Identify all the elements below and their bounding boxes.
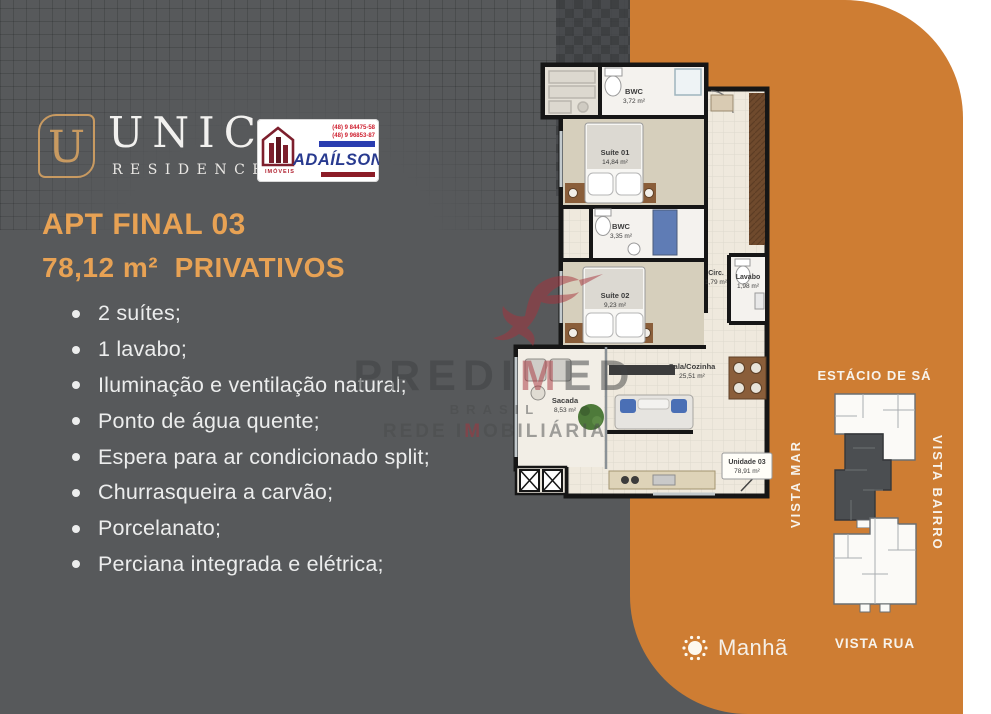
- orientation-top-label: ESTÁCIO DE SÁ: [812, 368, 937, 383]
- apartment-area: 78,12 m² PRIVATIVOS: [42, 252, 345, 284]
- unit-tag: Unidade 03 78,91 m²: [722, 453, 772, 479]
- feature-list: 2 suítes; 1 lavabo; Iluminação e ventila…: [70, 296, 430, 582]
- unit-name: Unidade 03: [728, 459, 765, 466]
- feature-item: Iluminação e ventilação natural;: [70, 368, 430, 404]
- room-label-bwc1: BWC: [625, 87, 643, 96]
- room-area-bwc2: 3,35 m²: [610, 233, 633, 240]
- flyer: U UNIC RESIDENCE ADAÍLSON IMÓVEIS (48) 9…: [0, 0, 991, 714]
- orientation-right-label: VISTA BAIRRO: [930, 435, 945, 551]
- agency-logo: ADAÍLSON IMÓVEIS (48) 9 84475-58 (48) 9 …: [257, 119, 379, 182]
- orientation-left-label: VISTA MAR: [788, 440, 803, 528]
- brand-name: UNIC: [108, 112, 265, 154]
- unit-area: 78,91 m²: [734, 468, 760, 475]
- house-icon: [261, 125, 295, 169]
- room-label-lavabo: Lavabo: [736, 274, 761, 281]
- room-area-bwc1: 3,72 m²: [623, 98, 646, 105]
- feature-item: 1 lavabo;: [70, 332, 430, 368]
- room-label-suite1: Suíte 01: [601, 148, 630, 157]
- room-label-bwc2: BWC: [612, 222, 630, 231]
- room-label-sacada: Sacada: [552, 396, 579, 405]
- site-plan-lower: [818, 506, 930, 639]
- headline: APT FINAL 03 78,12 m² PRIVATIVOS: [42, 208, 345, 284]
- agency-name: ADAÍLSON: [293, 151, 379, 170]
- room-area-sala: 25,51 m²: [679, 373, 705, 380]
- room-label-circ: Circ.: [708, 270, 724, 277]
- monogram-letter: U: [48, 126, 85, 170]
- brand-subtitle: RESIDENCE: [112, 162, 270, 178]
- feature-item: 2 suítes;: [70, 296, 430, 332]
- room-area-lavabo: 1,98 m²: [737, 283, 760, 290]
- room-label-suite2: Suíte 02: [601, 291, 630, 300]
- room-area-circ: 1,79 m²: [705, 279, 728, 286]
- feature-item: Porcelanato;: [70, 511, 430, 547]
- sun-icon: [681, 634, 709, 662]
- apartment-title: APT FINAL 03: [42, 208, 345, 242]
- orientation-bottom-label: VISTA RUA: [820, 636, 930, 651]
- room-label-sala: Sala/Cozinha: [669, 362, 717, 371]
- agency-banner: [319, 141, 375, 147]
- room-area-sacada: 8,53 m²: [554, 407, 577, 414]
- sun-indicator: Manhã: [681, 634, 788, 662]
- agency-phones: (48) 9 84475-58 (48) 9 96853-87: [332, 124, 375, 140]
- agency-phone-1: (48) 9 84475-58: [332, 124, 375, 132]
- room-area-suite1: 14,84 m²: [602, 159, 628, 166]
- room-area-suite2: 9,23 m²: [604, 302, 627, 309]
- agency-phone-2: (48) 9 96853-87: [332, 132, 375, 140]
- floor-plan: BWC 3,72 m² Suíte 01 14,84 m² BWC 3,35 m…: [503, 55, 775, 500]
- feature-item: Ponto de água quente;: [70, 403, 430, 439]
- feature-item: Churrasqueira a carvão;: [70, 475, 430, 511]
- feature-item: Perciana integrada e elétrica;: [70, 547, 430, 583]
- agency-tagline: IMÓVEIS: [265, 169, 295, 175]
- unic-monogram-icon: U: [38, 114, 95, 178]
- feature-item: Espera para ar condicionado split;: [70, 439, 430, 475]
- agency-small-print: [321, 172, 375, 177]
- sun-label: Manhã: [718, 635, 788, 661]
